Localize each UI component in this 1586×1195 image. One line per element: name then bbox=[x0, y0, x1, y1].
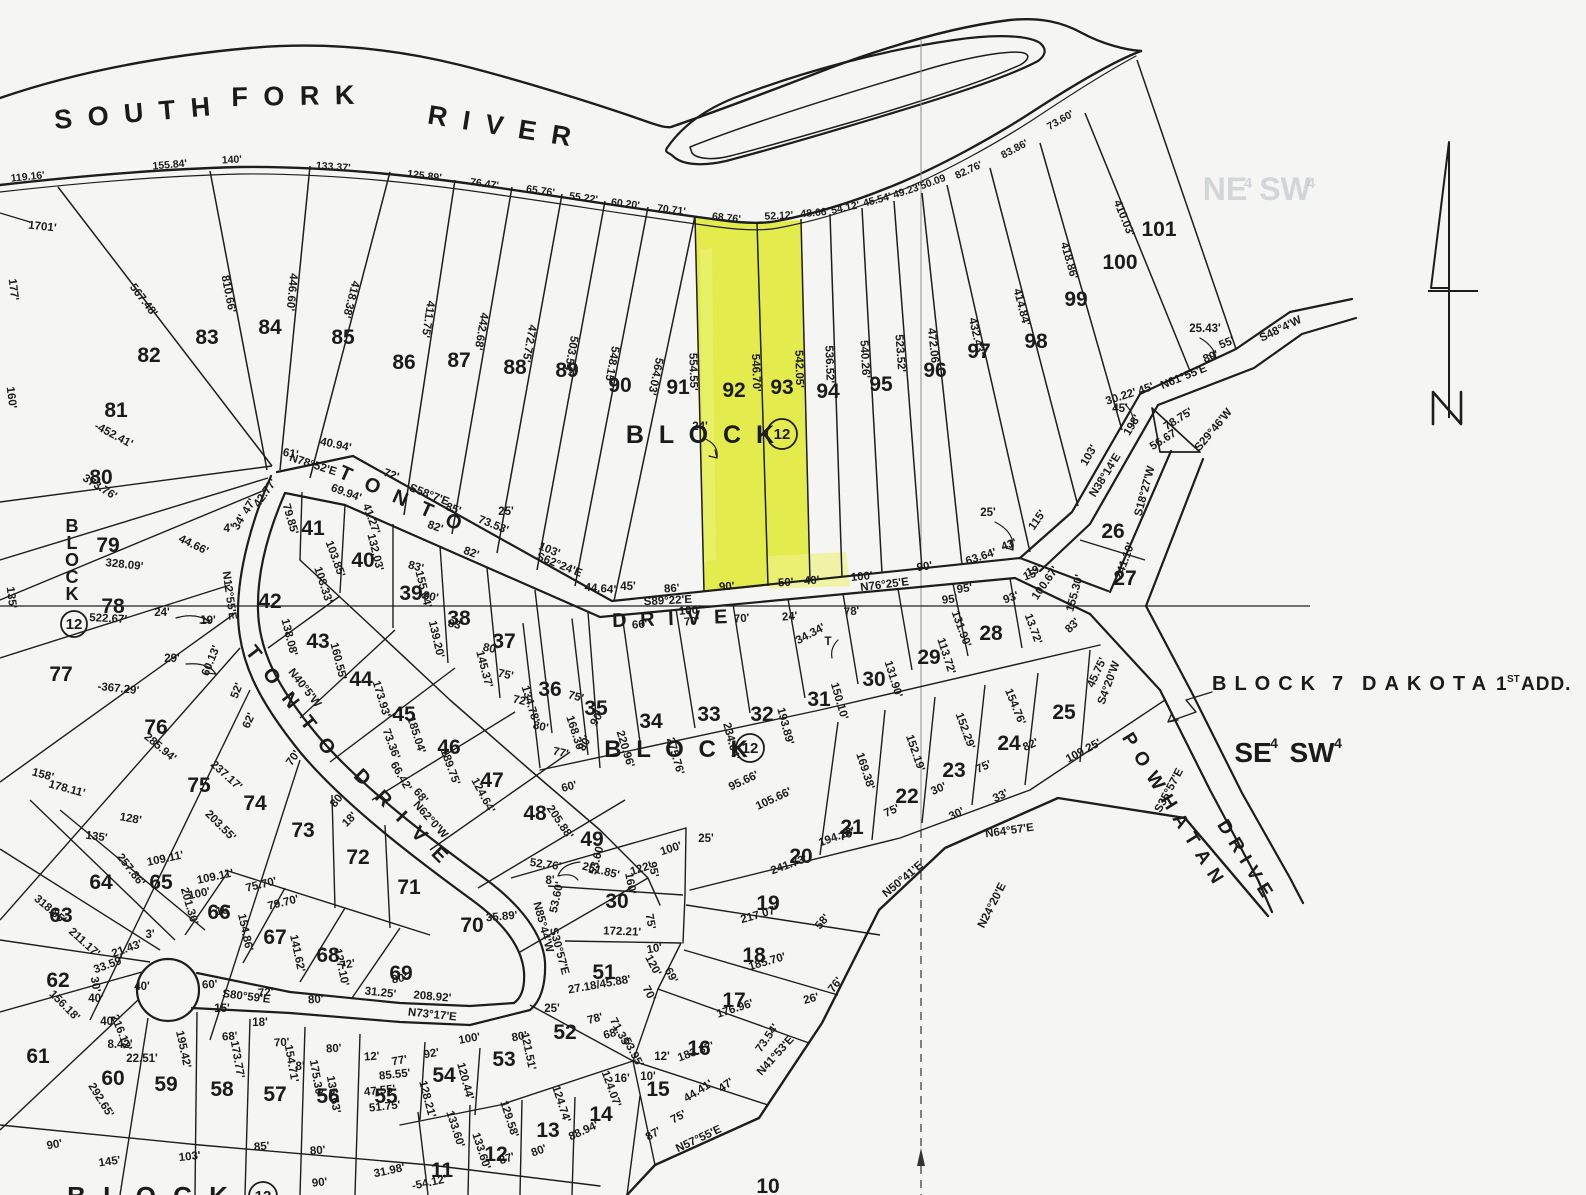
svg-text:89: 89 bbox=[555, 359, 578, 382]
svg-text:94: 94 bbox=[816, 380, 840, 403]
svg-text:30: 30 bbox=[862, 668, 885, 691]
svg-text:61: 61 bbox=[26, 1045, 50, 1068]
svg-text:T: T bbox=[824, 636, 831, 648]
svg-text:70: 70 bbox=[460, 914, 483, 937]
svg-text:35: 35 bbox=[584, 697, 608, 720]
svg-text:80': 80' bbox=[309, 1144, 326, 1157]
svg-text:73: 73 bbox=[291, 819, 314, 842]
svg-text:172.21': 172.21' bbox=[603, 925, 642, 938]
svg-text:72': 72' bbox=[258, 986, 275, 999]
svg-text:50': 50' bbox=[778, 576, 795, 589]
svg-text:40': 40' bbox=[804, 574, 821, 587]
svg-text:8': 8' bbox=[295, 1061, 304, 1073]
svg-text:93: 93 bbox=[770, 376, 793, 399]
svg-text:83: 83 bbox=[195, 326, 218, 349]
svg-text:3': 3' bbox=[145, 929, 154, 941]
svg-text:8': 8' bbox=[545, 875, 554, 887]
svg-text:SE: SE bbox=[1234, 737, 1271, 768]
svg-text:51: 51 bbox=[592, 961, 616, 984]
svg-text:52.12': 52.12' bbox=[764, 209, 793, 222]
svg-text:88: 88 bbox=[503, 356, 527, 379]
svg-text:33: 33 bbox=[697, 703, 720, 726]
svg-text:99: 99 bbox=[1064, 288, 1087, 311]
svg-text:32: 32 bbox=[750, 703, 773, 726]
svg-text:140': 140' bbox=[222, 153, 243, 166]
svg-text:79: 79 bbox=[96, 534, 119, 557]
svg-text:100: 100 bbox=[1102, 251, 1137, 274]
svg-text:45': 45' bbox=[620, 581, 636, 593]
svg-text:29': 29' bbox=[164, 653, 180, 665]
svg-text:101: 101 bbox=[1141, 218, 1176, 241]
svg-text:15': 15' bbox=[214, 1003, 230, 1015]
svg-text:95: 95 bbox=[869, 373, 893, 396]
svg-text:25': 25' bbox=[980, 507, 996, 519]
svg-text:31: 31 bbox=[807, 688, 831, 711]
svg-text:75: 75 bbox=[187, 774, 211, 797]
svg-text:4: 4 bbox=[1307, 175, 1316, 192]
svg-text:34: 34 bbox=[639, 710, 663, 733]
svg-text:542.05': 542.05' bbox=[792, 350, 805, 388]
svg-text:44: 44 bbox=[349, 668, 373, 691]
svg-text:74: 74 bbox=[243, 792, 267, 815]
svg-text:16': 16' bbox=[614, 1073, 630, 1085]
svg-text:12: 12 bbox=[774, 426, 791, 443]
svg-text:95': 95' bbox=[941, 593, 958, 607]
svg-text:D R I V E: D R I V E bbox=[612, 606, 732, 632]
svg-text:62: 62 bbox=[46, 969, 69, 992]
svg-text:S89°22'E: S89°22'E bbox=[643, 594, 692, 609]
svg-text:25: 25 bbox=[1052, 701, 1076, 724]
svg-text:12': 12' bbox=[364, 1050, 381, 1063]
svg-text:66: 66 bbox=[207, 901, 230, 924]
svg-text:90': 90' bbox=[719, 580, 736, 593]
svg-text:546.70': 546.70' bbox=[749, 354, 762, 393]
svg-text:65: 65 bbox=[149, 871, 173, 894]
svg-text:10: 10 bbox=[756, 1175, 779, 1195]
svg-text:28: 28 bbox=[979, 622, 1003, 645]
svg-text:76: 76 bbox=[144, 716, 167, 739]
svg-text:25': 25' bbox=[698, 833, 714, 845]
svg-text:13: 13 bbox=[536, 1119, 559, 1142]
svg-text:68: 68 bbox=[316, 944, 340, 967]
svg-text:86: 86 bbox=[392, 351, 415, 374]
svg-text:24': 24' bbox=[154, 607, 170, 619]
svg-text:52: 52 bbox=[553, 1021, 576, 1044]
svg-text:95': 95' bbox=[956, 582, 973, 596]
svg-text:66': 66' bbox=[631, 618, 648, 631]
svg-text:70': 70' bbox=[733, 612, 750, 625]
svg-text:4: 4 bbox=[1334, 735, 1342, 751]
svg-text:22.51': 22.51' bbox=[126, 1053, 158, 1065]
svg-text:133.37': 133.37' bbox=[316, 160, 351, 174]
svg-text:85: 85 bbox=[331, 326, 355, 349]
svg-text:26: 26 bbox=[1101, 520, 1124, 543]
svg-text:1: 1 bbox=[1496, 674, 1507, 695]
svg-text:4: 4 bbox=[1270, 735, 1278, 751]
svg-text:90': 90' bbox=[916, 560, 933, 574]
svg-text:K: K bbox=[66, 584, 79, 604]
svg-text:63: 63 bbox=[49, 904, 72, 927]
svg-text:42: 42 bbox=[258, 590, 281, 613]
svg-text:91: 91 bbox=[666, 376, 690, 399]
svg-text:18': 18' bbox=[252, 1017, 268, 1029]
svg-text:4: 4 bbox=[1244, 175, 1253, 192]
svg-text:B L O C K: B L O C K bbox=[67, 1181, 233, 1195]
svg-text:NE: NE bbox=[1203, 171, 1247, 207]
svg-text:80': 80' bbox=[308, 993, 325, 1006]
svg-text:103': 103' bbox=[178, 1150, 201, 1164]
svg-text:12': 12' bbox=[654, 1051, 670, 1063]
svg-text:90': 90' bbox=[311, 1176, 328, 1190]
svg-text:98: 98 bbox=[1024, 330, 1048, 353]
svg-text:41: 41 bbox=[301, 517, 325, 540]
svg-text:68': 68' bbox=[222, 1030, 239, 1043]
svg-text:40': 40' bbox=[88, 993, 104, 1005]
svg-text:DAKOTA: DAKOTA bbox=[1362, 673, 1494, 695]
svg-text:14: 14 bbox=[589, 1103, 613, 1126]
svg-text:84: 84 bbox=[258, 316, 282, 339]
svg-text:53: 53 bbox=[492, 1048, 515, 1071]
svg-text:40': 40' bbox=[100, 1016, 116, 1028]
svg-text:22: 22 bbox=[895, 785, 918, 808]
svg-text:43: 43 bbox=[306, 630, 329, 653]
svg-text:70': 70' bbox=[274, 1036, 291, 1049]
svg-text:59: 59 bbox=[154, 1073, 177, 1096]
svg-text:82: 82 bbox=[137, 344, 160, 367]
svg-text:71: 71 bbox=[397, 876, 421, 899]
svg-text:81: 81 bbox=[104, 399, 128, 422]
svg-text:64: 64 bbox=[89, 871, 113, 894]
svg-text:60': 60' bbox=[202, 978, 219, 991]
svg-text:78': 78' bbox=[843, 605, 860, 618]
svg-text:8.42': 8.42' bbox=[107, 1039, 132, 1051]
svg-text:ADD.: ADD. bbox=[1521, 674, 1571, 695]
svg-text:70': 70' bbox=[683, 615, 700, 628]
svg-text:10': 10' bbox=[640, 1071, 656, 1083]
svg-text:80': 80' bbox=[326, 1042, 343, 1055]
svg-text:67: 67 bbox=[263, 926, 286, 949]
svg-text:12: 12 bbox=[255, 1188, 272, 1195]
svg-text:12: 12 bbox=[66, 616, 83, 633]
svg-text:90: 90 bbox=[608, 374, 631, 397]
svg-text:92: 92 bbox=[722, 379, 745, 402]
svg-text:48: 48 bbox=[523, 802, 547, 825]
svg-text:25': 25' bbox=[498, 506, 514, 518]
svg-text:36: 36 bbox=[538, 678, 561, 701]
svg-text:25': 25' bbox=[544, 1003, 560, 1015]
svg-text:25.43': 25.43' bbox=[1189, 323, 1221, 335]
svg-text:30: 30 bbox=[605, 890, 628, 913]
svg-text:77: 77 bbox=[49, 663, 72, 686]
svg-text:12: 12 bbox=[742, 740, 759, 757]
svg-text:54: 54 bbox=[432, 1064, 456, 1087]
svg-text:7: 7 bbox=[1332, 673, 1343, 695]
svg-text:56: 56 bbox=[316, 1085, 339, 1108]
svg-text:BLOCK: BLOCK bbox=[1212, 673, 1323, 695]
svg-text:57: 57 bbox=[263, 1083, 286, 1106]
svg-text:ST: ST bbox=[1507, 674, 1520, 685]
svg-text:F O R K: F O R K bbox=[231, 80, 359, 112]
svg-text:72: 72 bbox=[346, 846, 369, 869]
svg-text:24': 24' bbox=[692, 421, 708, 433]
svg-text:96: 96 bbox=[923, 359, 946, 382]
svg-text:58: 58 bbox=[210, 1078, 234, 1101]
svg-text:23: 23 bbox=[942, 759, 965, 782]
svg-text:60: 60 bbox=[101, 1067, 124, 1090]
svg-text:87: 87 bbox=[447, 349, 470, 372]
svg-text:97: 97 bbox=[967, 340, 990, 363]
svg-text:24: 24 bbox=[997, 732, 1021, 755]
svg-text:48.66': 48.66' bbox=[800, 206, 830, 220]
svg-text:SW: SW bbox=[1259, 171, 1311, 207]
svg-text:40': 40' bbox=[134, 981, 150, 993]
svg-text:24': 24' bbox=[781, 610, 798, 623]
svg-text:29: 29 bbox=[917, 646, 940, 669]
svg-text:11: 11 bbox=[431, 1159, 454, 1182]
svg-text:85': 85' bbox=[253, 1140, 270, 1153]
svg-text:536.52': 536.52' bbox=[822, 345, 835, 384]
svg-text:SW: SW bbox=[1289, 737, 1335, 768]
